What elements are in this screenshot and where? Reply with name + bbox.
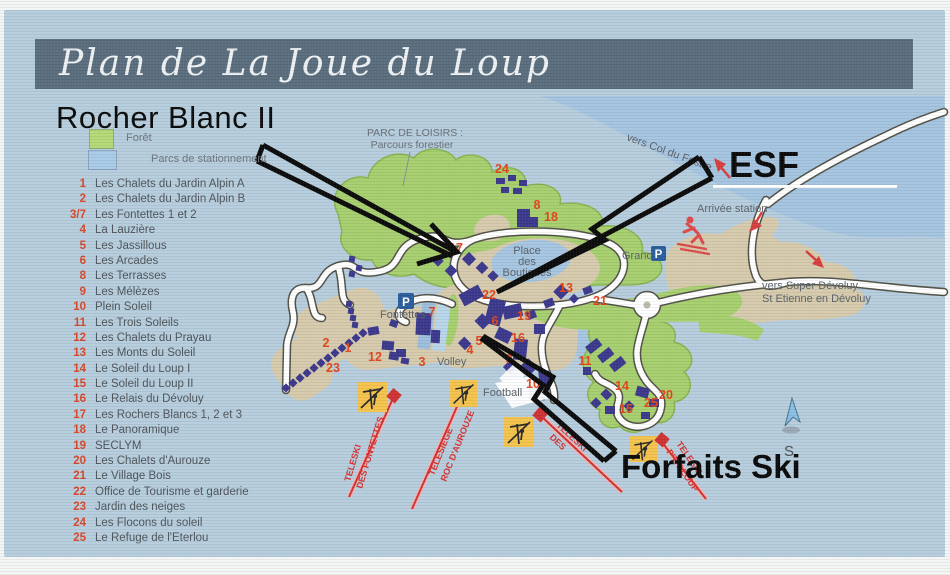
legend-item-label: Plein Soleil: [95, 301, 152, 313]
legend-item-number: 18: [58, 423, 86, 438]
legend-item-13: 13Les Monts du Soleil: [58, 346, 249, 361]
legend-item-16: 16Le Relais du Dévoluy: [58, 392, 249, 407]
football-label: Football: [483, 387, 522, 399]
legend-item-number: 12: [58, 331, 86, 346]
legend-item-12: 12Les Chalets du Prayau: [58, 331, 249, 346]
legend-item-25: 25Le Refuge de l'Eterlou: [58, 531, 249, 546]
legend-item-8: 8Les Terrasses: [58, 269, 249, 284]
legend-item-label: Les Rochers Blancs 1, 2 et 3: [95, 409, 242, 421]
esf-underline: [713, 185, 897, 188]
map-marker-20: 20: [659, 388, 673, 402]
map-marker-13: 13: [559, 281, 573, 295]
legend-item-9: 9Les Mélèzes: [58, 285, 249, 300]
legend-item-label: Le Soleil du Loup I: [95, 363, 190, 375]
legend-item-number: 2: [58, 192, 86, 207]
legend-item-number: 16: [58, 392, 86, 407]
page-title: Plan de La Joue du Loup: [35, 39, 913, 89]
parc-de-loisirs-label: PARC DE LOISIRS :: [367, 127, 463, 139]
legend-item-label: Les Mélèzes: [95, 286, 160, 298]
parcours-forestier-label: Parcours forestier: [371, 139, 454, 151]
map-marker-14: 14: [615, 379, 629, 393]
legend-item-label: Les Trois Soleils: [95, 317, 179, 329]
parking-p-letter: P: [402, 297, 410, 309]
legend-item-label: Jardin des neiges: [95, 501, 185, 513]
legend-item-number: 20: [58, 454, 86, 469]
legend-item-label: Les Chalets d'Aurouze: [95, 455, 210, 467]
legend-item-label: Les Monts du Soleil: [95, 347, 195, 359]
legend-item-label: Les Chalets du Jardin Alpin B: [95, 193, 245, 205]
legend-item-15: 15Le Soleil du Loup II: [58, 377, 249, 392]
legend-item-11: 11Les Trois Soleils: [58, 316, 249, 331]
legend-item-number: 23: [58, 500, 86, 515]
legend-item-3-7: 3/7Les Fontettes 1 et 2: [58, 208, 249, 223]
legend-item-number: 14: [58, 362, 86, 377]
legend-item-4: 4La Lauzière: [58, 223, 249, 238]
legend-item-17: 17Les Rochers Blancs 1, 2 et 3: [58, 408, 249, 423]
grand-parking-label: Grand: [622, 250, 653, 262]
legend-item-label: Les Terrasses: [95, 270, 166, 282]
resort-map-page: P P S PARC DE LOISIRS : Parcours foresti…: [0, 0, 950, 575]
map-marker-11: 11: [578, 354, 591, 368]
roundabout-center: [644, 302, 651, 309]
legend-item-18: 18Le Panoramique: [58, 423, 249, 438]
legend-item-number: 8: [58, 269, 86, 284]
legend-item-label: Les Jassillous: [95, 240, 167, 252]
st-etienne-label: St Etienne en Dévoluy: [762, 293, 871, 305]
legend-item-number: 9: [58, 285, 86, 300]
legend-item-number: 24: [58, 516, 86, 531]
annotation-forfaits-ski: Forfaits Ski: [621, 448, 801, 486]
map-marker-4: 4: [467, 343, 474, 357]
legend-item-number: 25: [58, 531, 86, 546]
annotation-rocher-blanc: Rocher Blanc II: [56, 100, 275, 136]
map-marker-23: 23: [326, 361, 340, 375]
legend-item-label: Les Fontettes 1 et 2: [95, 209, 197, 221]
legend-item-number: 6: [58, 254, 86, 269]
fontettes-label: Fontettes: [380, 309, 426, 321]
legend-item-number: 4: [58, 223, 86, 238]
legend-item-label: Les Chalets du Prayau: [95, 332, 211, 344]
legend-item-label: Office de Tourisme et garderie: [95, 486, 249, 498]
map-marker-18: 18: [544, 210, 558, 224]
legend-item-10: 10Plein Soleil: [58, 300, 249, 315]
map-marker-8: 8: [534, 198, 541, 212]
legend-item-label: Le Refuge de l'Eterlou: [95, 532, 208, 544]
legend-item-14: 14Le Soleil du Loup I: [58, 362, 249, 377]
map-marker-12: 12: [368, 350, 382, 364]
legend-item-24: 24Les Flocons du soleil: [58, 516, 249, 531]
legend-item-label: Le Panoramique: [95, 424, 179, 436]
legend-item-number: 15: [58, 377, 86, 392]
legend-item-number: 17: [58, 408, 86, 423]
legend-item-19: 19SECLYM: [58, 439, 249, 454]
legend-item-label: Les Chalets du Jardin Alpin A: [95, 178, 245, 190]
legend-item-20: 20Les Chalets d'Aurouze: [58, 454, 249, 469]
legend-item-23: 23Jardin des neiges: [58, 500, 249, 515]
legend-item-number: 21: [58, 469, 86, 484]
vers-super-devoluy-label: vers Super Dévoluy: [762, 280, 858, 292]
map-marker-1: 1: [345, 341, 352, 355]
legend-item-label: Le Soleil du Loup II: [95, 378, 193, 390]
legend-item-number: 10: [58, 300, 86, 315]
legend-item-22: 22Office de Tourisme et garderie: [58, 485, 249, 500]
map-marker-16: 16: [511, 331, 525, 345]
map-marker-6: 6: [492, 314, 499, 328]
legend-item-label: Les Arcades: [95, 255, 158, 267]
legend-item-1: 1Les Chalets du Jardin Alpin A: [58, 177, 249, 192]
legend-item-label: Le Village Bois: [95, 470, 171, 482]
map-marker-15: 15: [619, 402, 633, 416]
map-marker-24: 24: [495, 162, 509, 176]
legend-item-number: 11: [58, 316, 86, 331]
legend-list: 1Les Chalets du Jardin Alpin A2Les Chale…: [58, 177, 249, 546]
legend-item-21: 21Le Village Bois: [58, 469, 249, 484]
annotation-esf: ESF: [729, 144, 799, 186]
legend-item-number: 5: [58, 239, 86, 254]
title-banner: Plan de La Joue du Loup: [35, 39, 913, 89]
legend-item-label: Le Relais du Dévoluy: [95, 393, 204, 405]
legend-item-2: 2Les Chalets du Jardin Alpin B: [58, 192, 249, 207]
parking-swatch-label: Parcs de stationnement: [151, 153, 267, 165]
map-marker-22: 22: [482, 288, 496, 302]
legend-item-number: 22: [58, 485, 86, 500]
legend-item-label: Les Flocons du soleil: [95, 517, 202, 529]
map-marker-3: 3: [419, 355, 426, 369]
legend-item-label: La Lauzière: [95, 224, 155, 236]
map-marker-7: 7: [429, 305, 436, 319]
map-marker-19: 19: [517, 309, 531, 323]
volley-label: Volley: [437, 356, 467, 368]
legend-item-label: SECLYM: [95, 440, 141, 452]
legend-item-number: 13: [58, 346, 86, 361]
parking-color-swatch: [88, 150, 117, 170]
legend-item-number: 19: [58, 439, 86, 454]
parking-p-letter: P: [655, 249, 663, 261]
legend-item-number: 1: [58, 177, 86, 192]
legend-item-number: 3/7: [58, 208, 86, 223]
map-marker-2: 2: [323, 336, 330, 350]
map-marker-25: 25: [644, 396, 658, 410]
arrivee-station-label: Arrivée station: [697, 203, 767, 215]
legend-item-5: 5Les Jassillous: [58, 239, 249, 254]
map-marker-21: 21: [593, 294, 607, 308]
legend-item-6: 6Les Arcades: [58, 254, 249, 269]
